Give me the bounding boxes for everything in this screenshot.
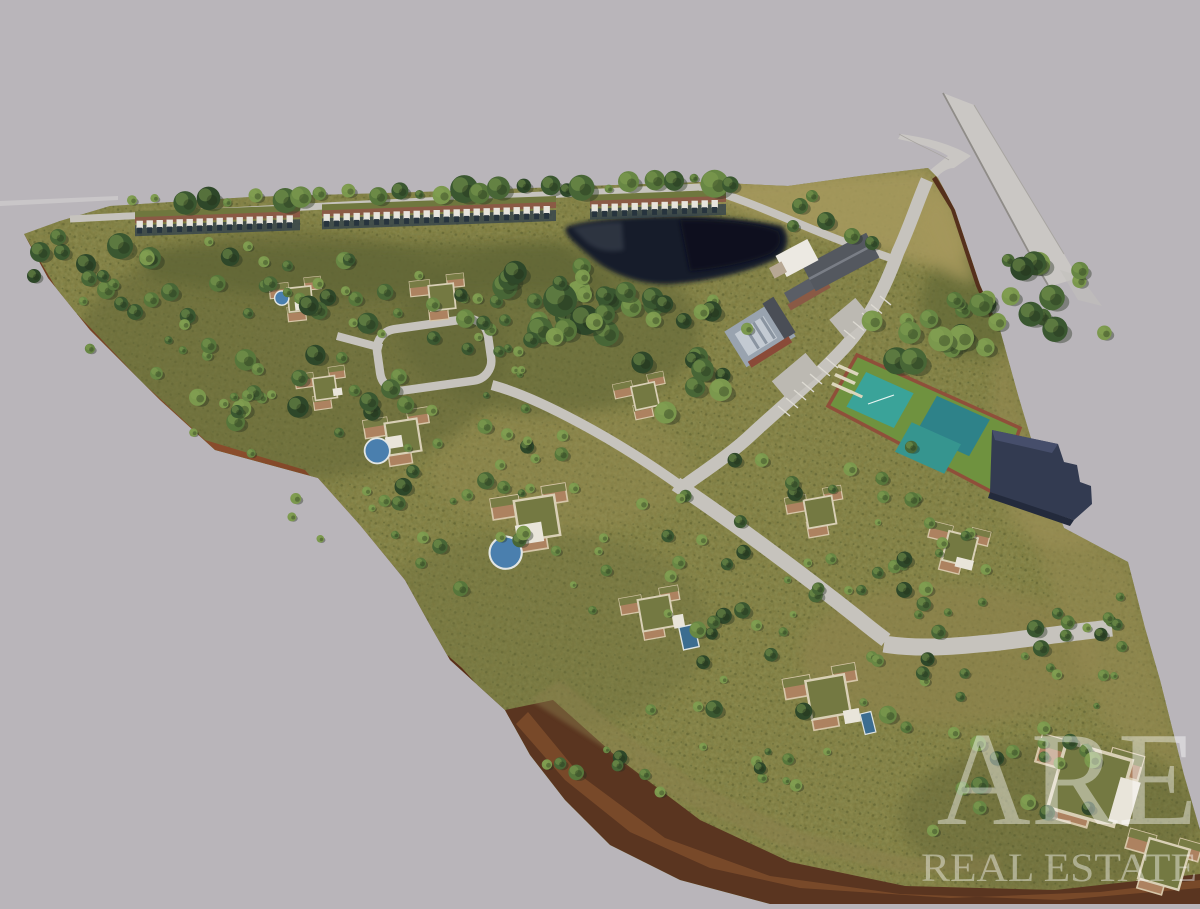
svg-text:ARE: ARE — [937, 705, 1198, 853]
svg-text:REAL ESTATE: REAL ESTATE — [921, 845, 1197, 890]
